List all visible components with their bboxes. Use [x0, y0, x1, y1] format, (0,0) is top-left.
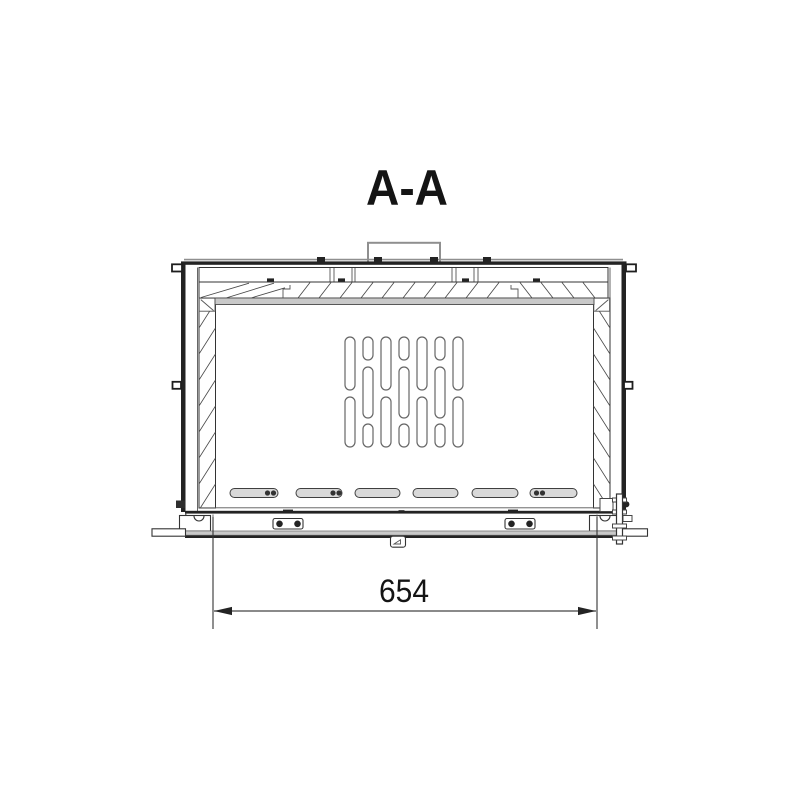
bottom-air-slots — [230, 489, 577, 498]
flange-left — [152, 529, 186, 536]
section-title: A-A — [366, 160, 448, 216]
corner-bracket-right — [590, 516, 621, 532]
fixing-tab-top-left — [172, 264, 182, 271]
vent-slot-grid — [345, 337, 463, 447]
fixing-tab-top-right — [626, 264, 636, 271]
baffle-plate — [215, 298, 594, 305]
arrowhead-right — [578, 607, 596, 615]
technical-drawing-page: A-A — [0, 0, 800, 800]
fixing-tab-mid-right — [624, 382, 633, 389]
fixing-tab-mid-left — [173, 382, 182, 389]
screw-plate-right — [505, 519, 535, 530]
base-frame — [152, 508, 648, 547]
fixing-tab-low-left — [176, 501, 185, 509]
arrowhead-left — [214, 607, 232, 615]
flange-right — [622, 529, 648, 536]
insulation-hatching-top — [199, 282, 608, 298]
dimension-value: 654 — [379, 573, 429, 609]
section-drawing: A-A — [0, 0, 800, 800]
screw-plate-left — [273, 519, 303, 530]
door-catch — [391, 536, 406, 547]
